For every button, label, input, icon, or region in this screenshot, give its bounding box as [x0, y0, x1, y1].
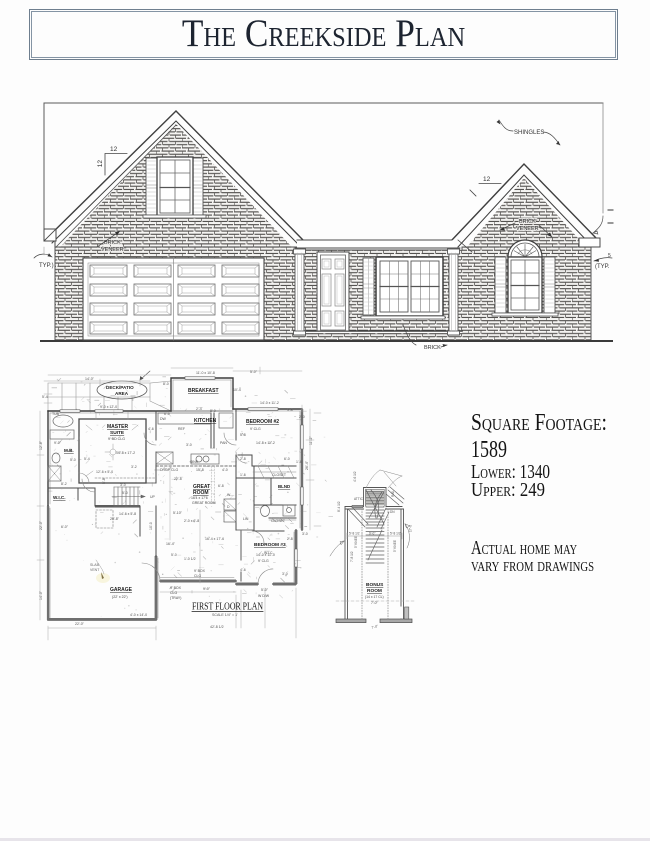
- svg-text:4'-6: 4'-6: [240, 568, 246, 572]
- svg-text:14'-6 x 5'-8: 14'-6 x 5'-8: [119, 512, 136, 516]
- svg-text:5'-0: 5'-0: [171, 553, 177, 557]
- svg-text:5' KNEE: 5' KNEE: [393, 540, 397, 552]
- svg-text:9' BOX: 9' BOX: [194, 569, 206, 573]
- svg-text:1'-0 1/2: 1'-0 1/2: [184, 557, 196, 561]
- svg-text:2'-0 x 6'-8: 2'-0 x 6'-8: [184, 519, 199, 523]
- svg-text:CLG: CLG: [170, 591, 177, 595]
- svg-text:MASTER: MASTER: [107, 424, 129, 430]
- svg-text:LIN: LIN: [243, 517, 249, 521]
- svg-text:TUB: TUB: [52, 412, 60, 416]
- svg-text:CLOSET: CLOSET: [272, 473, 287, 477]
- svg-text:9' CLG: 9' CLG: [258, 559, 269, 563]
- svg-text:3'-0: 3'-0: [282, 572, 288, 576]
- svg-text:22'-0": 22'-0": [75, 622, 85, 626]
- svg-text:9' BD CLG: 9' BD CLG: [108, 437, 125, 441]
- svg-text:5'-8 1/2: 5'-8 1/2: [390, 532, 401, 536]
- svg-text:BREAKFAST: BREAKFAST: [188, 388, 219, 394]
- svg-text:9'-0": 9'-0": [369, 532, 375, 536]
- svg-text:BONUS: BONUS: [366, 582, 384, 588]
- svg-text:5'-0": 5'-0": [261, 588, 269, 592]
- svg-text:UP: UP: [150, 495, 156, 499]
- svg-text:VENT: VENT: [90, 568, 100, 572]
- svg-text:12: 12: [110, 146, 118, 153]
- svg-text:7'-0": 7'-0": [371, 601, 379, 605]
- svg-text:BEDROOM #3: BEDROOM #3: [254, 542, 286, 548]
- svg-text:16'4 x 17'6: 16'4 x 17'6: [191, 496, 208, 500]
- svg-text:ATTIC: ATTIC: [354, 497, 364, 501]
- svg-text:7'-8 1/2: 7'-8 1/2: [350, 551, 354, 562]
- svg-text:4'-6: 4'-6: [148, 427, 154, 431]
- svg-text:14'-8 x 17'-2: 14'-8 x 17'-2: [116, 451, 135, 455]
- svg-text:14'-8 x 11'-2: 14'-8 x 11'-2: [256, 441, 275, 445]
- svg-text:6'-0: 6'-0: [284, 457, 290, 461]
- svg-text:BRICK: BRICK: [424, 345, 441, 351]
- svg-text:12'-6 x 5'-0: 12'-6 x 5'-0: [96, 470, 113, 474]
- svg-text:1'-6: 1'-6: [296, 460, 302, 464]
- svg-text:5'-10": 5'-10": [173, 511, 183, 515]
- svg-text:8'-0: 8'-0: [163, 382, 169, 386]
- svg-text:GARAGE: GARAGE: [110, 587, 133, 593]
- svg-text:PAN: PAN: [220, 441, 227, 445]
- svg-text:2'-0: 2'-0: [299, 415, 305, 419]
- svg-text:26'-4": 26'-4": [305, 460, 309, 470]
- svg-text:(22' x 22'): (22' x 22'): [112, 595, 128, 599]
- svg-text:W.I.C.: W.I.C.: [53, 495, 66, 500]
- svg-text:4'-0: 4'-0: [222, 468, 228, 472]
- svg-text:5: 5: [608, 253, 611, 259]
- svg-text:(TYP.: (TYP.: [595, 264, 610, 270]
- svg-text:14'-0": 14'-0": [39, 590, 43, 600]
- svg-text:11'-2": 11'-2": [309, 436, 313, 445]
- svg-text:5'-8: 5'-8: [287, 408, 293, 412]
- svg-text:5'-0: 5'-0: [122, 491, 128, 495]
- svg-text:3'-2: 3'-2: [131, 465, 137, 469]
- svg-text:DECK/PATIO: DECK/PATIO: [106, 385, 134, 390]
- svg-text:BLND: BLND: [278, 484, 290, 489]
- svg-text:11'-0 x 10'-8: 11'-0 x 10'-8: [196, 371, 215, 375]
- svg-text:RAIL: RAIL: [391, 490, 395, 497]
- svg-text:SUITE: SUITE: [110, 430, 125, 436]
- svg-text:2'-8: 2'-8: [240, 457, 246, 461]
- svg-text:5'-0": 5'-0": [250, 370, 258, 374]
- svg-text:15'-8: 15'-8: [196, 468, 204, 472]
- svg-text:D: D: [227, 505, 230, 509]
- svg-text:16'-4": 16'-4": [166, 542, 176, 546]
- svg-text:17'-0: 17'-0: [409, 525, 413, 532]
- svg-text:8'-2: 8'-2: [61, 482, 67, 486]
- svg-text:3'-0: 3'-0: [302, 532, 308, 536]
- svg-text:CLG: CLG: [194, 574, 201, 578]
- svg-text:10'-4: 10'-4: [233, 388, 241, 392]
- svg-text:5'-8 1/2: 5'-8 1/2: [349, 532, 360, 536]
- svg-text:4'-0 x 14'-0: 4'-0 x 14'-0: [130, 613, 147, 617]
- svg-text:DW: DW: [160, 417, 167, 421]
- svg-text:14'-0": 14'-0": [85, 377, 95, 381]
- svg-text:5'-4: 5'-4: [42, 395, 48, 399]
- svg-text:12: 12: [483, 176, 491, 183]
- svg-text:14'-0 x 11'-2: 14'-0 x 11'-2: [260, 401, 279, 405]
- svg-text:ROOM: ROOM: [367, 588, 382, 594]
- svg-text:9' CLG: 9' CLG: [250, 427, 261, 431]
- svg-text:GREAT ROOM: GREAT ROOM: [192, 501, 216, 505]
- svg-text:9'-0 x 12'-0: 9'-0 x 12'-0: [100, 405, 117, 409]
- svg-text:REF: REF: [178, 427, 185, 431]
- svg-text:1'-6: 1'-6: [240, 473, 246, 477]
- svg-text:20'-8": 20'-8": [110, 517, 120, 521]
- svg-text:16'-4 x 17'-6: 16'-4 x 17'-6: [205, 537, 224, 541]
- svg-text:W: W: [227, 493, 231, 497]
- svg-text:8'-4 1/2: 8'-4 1/2: [337, 501, 341, 512]
- svg-text:DROP CLG: DROP CLG: [160, 468, 178, 472]
- svg-text:TYP.): TYP.): [39, 263, 54, 269]
- svg-text:W D/W: W D/W: [258, 594, 270, 598]
- svg-text:2'-8: 2'-8: [287, 537, 293, 541]
- svg-text:6'-8: 6'-8: [218, 484, 224, 488]
- svg-text:12: 12: [97, 160, 104, 168]
- svg-text:SCALE 1/4" = 1': SCALE 1/4" = 1': [212, 613, 238, 617]
- svg-text:SHINGLES: SHINGLES: [514, 130, 544, 136]
- svg-text:8'-0: 8'-0: [210, 409, 216, 413]
- svg-text:DN: DN: [390, 510, 395, 514]
- svg-text:3'-0: 3'-0: [186, 443, 192, 447]
- svg-text:(14 x 17 CL): (14 x 17 CL): [365, 595, 384, 599]
- svg-text:10'-0: 10'-0: [149, 522, 153, 530]
- svg-text:6'-0": 6'-0": [61, 525, 69, 529]
- svg-text:12'-8": 12'-8": [39, 440, 43, 450]
- svg-text:AREA: AREA: [115, 391, 129, 396]
- svg-text:4'-6 1/2: 4'-6 1/2: [353, 471, 357, 482]
- svg-text:(TRAY): (TRAY): [170, 596, 181, 600]
- svg-text:KITCHEN: KITCHEN: [194, 418, 217, 424]
- svg-text:5'-0: 5'-0: [70, 458, 76, 462]
- svg-text:FIRST FLOOR PLAN: FIRST FLOOR PLAN: [192, 602, 263, 613]
- svg-text:CLOSET: CLOSET: [271, 519, 286, 523]
- svg-text:5' KNEE: 5' KNEE: [354, 536, 358, 548]
- svg-text:5'-8: 5'-8: [102, 478, 106, 484]
- svg-text:7'-0": 7'-0": [371, 624, 379, 630]
- svg-text:22'-0": 22'-0": [39, 520, 43, 530]
- svg-text:42'-8 1/2: 42'-8 1/2: [210, 625, 224, 629]
- svg-text:SLAB: SLAB: [90, 563, 100, 567]
- svg-text:3'-0: 3'-0: [120, 483, 126, 487]
